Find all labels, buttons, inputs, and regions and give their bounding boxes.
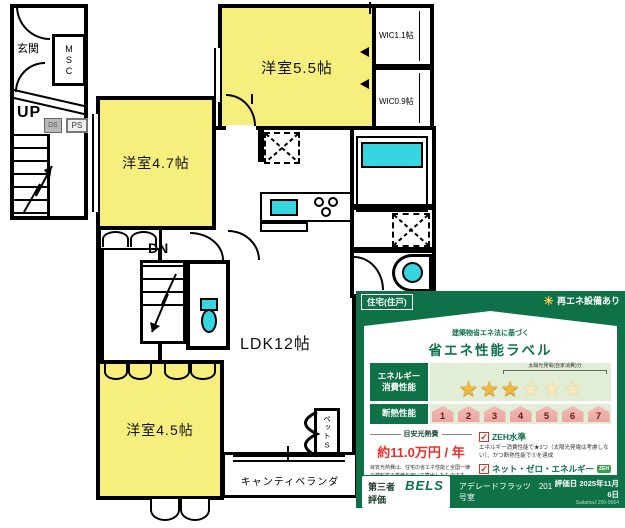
star-solar-icon: ★: [563, 379, 582, 401]
folding-door-icon: [306, 412, 318, 456]
property-name: アデレードフラッツ 201号室: [459, 481, 554, 503]
insulation-level-house-icon: 4: [510, 406, 532, 422]
annual-cost-value: 約11.0万円 / 年: [370, 442, 472, 461]
solar-self-consumption-note: 太陽光発電(自家消費)分: [503, 364, 607, 369]
certificate-number: SaitamaJ 200-9064: [553, 500, 619, 506]
insulation-header-label: 断熱性能: [382, 408, 416, 419]
slope-line: [14, 98, 84, 114]
insulation-houses: 1234567: [430, 404, 611, 424]
insulation-level-house-icon: 7: [588, 406, 610, 422]
zeh-title: ZEH水準: [492, 431, 526, 443]
insulation-level-house-icon: 5: [536, 406, 558, 422]
refrigerator-x-mark: [266, 134, 298, 162]
net-zero-check-row: ✓ ネット・ゼロ・エネルギー ZEH: [479, 463, 611, 475]
zeh-text: エネルギー消費性能で★3つ（太陽光発電は考慮しない）、かつ断熱性能で⑤を達成: [479, 444, 611, 461]
insulation-header: 断熱性能: [370, 404, 428, 424]
insulation-level-house-icon: 2: [458, 406, 480, 422]
dwelling-type-tag: 住宅(住戸): [361, 294, 413, 310]
stairs-up-arrowhead: [44, 166, 52, 178]
bels-logo: BELS: [405, 478, 444, 493]
divider: [442, 434, 473, 435]
solar-bracket: [503, 370, 607, 374]
cost-heading-row: 目安光熱費: [370, 429, 472, 439]
washer-x-mark: [394, 215, 428, 245]
zeh-badge-icon: ZEH: [597, 465, 611, 473]
star-filled-icon: ★: [459, 379, 478, 401]
star-filled-icon: ★: [480, 379, 499, 401]
sun-icon: ☀: [543, 295, 554, 307]
energy-performance-header: エネルギー 消費性能: [370, 363, 428, 401]
stairs-down-arrow: [152, 274, 176, 332]
renewable-label: 再エネ設備あり: [557, 294, 620, 307]
energy-performance-row: エネルギー 消費性能 太陽光発電(自家消費)分 ★★★★★★: [370, 363, 611, 401]
star-filled-icon: ★: [501, 379, 520, 401]
law-subtitle: 建築物省エネ法に基づく: [370, 328, 611, 338]
insulation-level-house-icon: 6: [562, 406, 584, 422]
divider: [370, 434, 401, 435]
slope-line: [14, 90, 84, 106]
floor-plan-canvas: 玄関 MSC UP DS PS LDK12帖 洋室5.5帖 WIC1.1帖 WI…: [0, 0, 625, 528]
label-title: 省エネ性能ラベル: [370, 339, 611, 359]
checkmark-icon: ✓: [479, 432, 489, 442]
bels-box: 第三者評価 BELS: [362, 476, 450, 508]
checkmark-icon: ✓: [479, 464, 489, 474]
energy-header-line1: エネルギー: [378, 371, 421, 382]
net-zero-title: ネット・ゼロ・エネルギー: [492, 463, 594, 475]
star-solar-icon: ★: [522, 379, 541, 401]
evaluation-date-block: 評価日 2025年11月6日 SaitamaJ 200-9064: [553, 478, 619, 506]
label-card: 建築物省エネ法に基づく 省エネ性能ラベル エネルギー 消費性能 太陽光発電(自家…: [364, 311, 617, 475]
evaluation-date: 評価日 2025年11月6日: [553, 478, 619, 500]
energy-stars: 太陽光発電(自家消費)分 ★★★★★★: [430, 363, 611, 401]
energy-performance-label: 住宅(住戸) ☀ 再エネ設備あり 建築物省エネ法に基づく 省エネ性能ラベル エネ…: [356, 291, 625, 508]
cost-heading: 目安光熱費: [404, 429, 439, 439]
energy-header-line2: 消費性能: [382, 382, 416, 393]
insulation-row: 断熱性能 1234567: [370, 404, 611, 424]
renewable-equipment-badge: ☀ 再エネ設備あり: [543, 294, 620, 307]
evaluator-label: 第三者評価: [368, 480, 401, 506]
star-solar-icon: ★: [542, 379, 561, 401]
insulation-level-house-icon: 3: [484, 406, 506, 422]
zeh-check-row: ✓ ZEH水準: [479, 431, 611, 443]
label-footer: 第三者評価 BELS アデレードフラッツ 201号室 評価日 2025年11月6…: [356, 475, 625, 508]
insulation-level-house-icon: 1: [432, 406, 454, 422]
